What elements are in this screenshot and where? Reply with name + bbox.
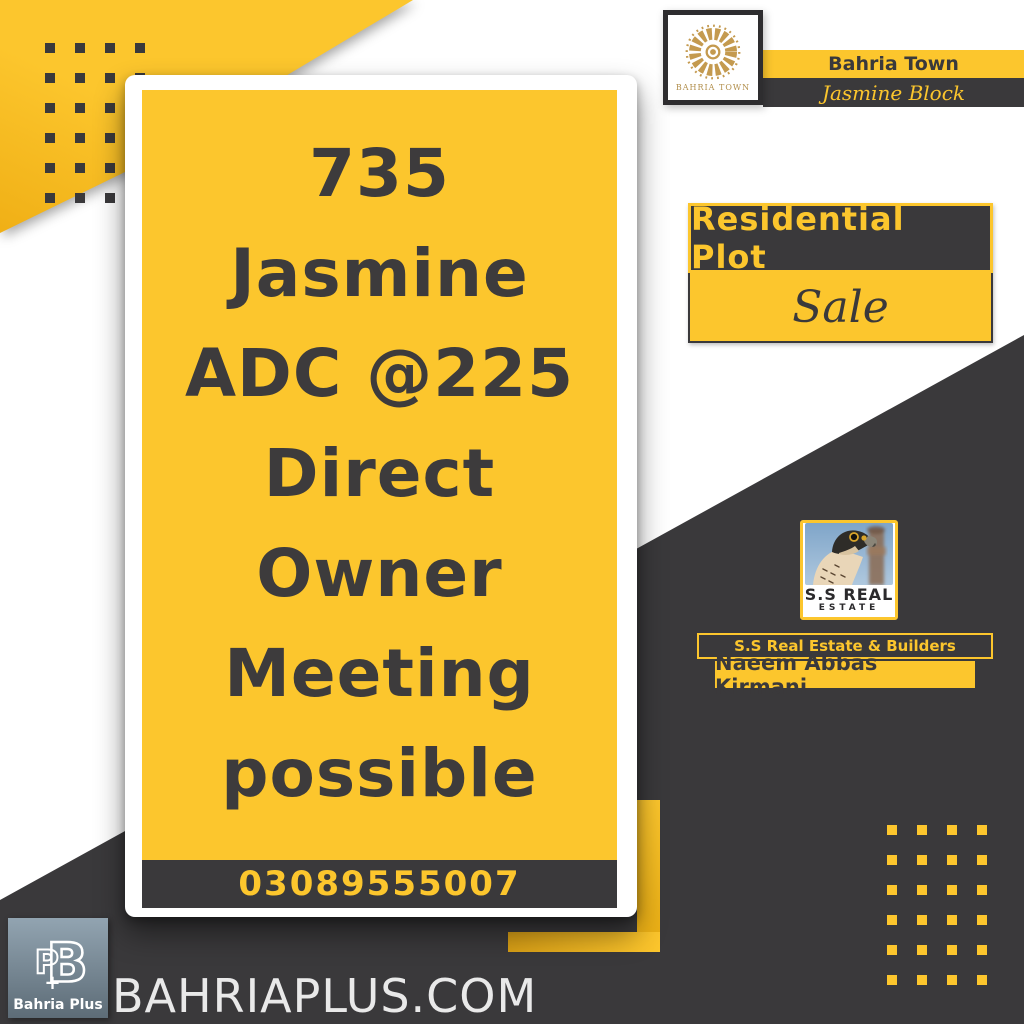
headline-line: Meeting (142, 624, 617, 724)
listing-type-bar: Residential Plot (688, 203, 993, 273)
headline-line: ADC @225 (142, 324, 617, 424)
yellow-bracket-horizontal (508, 932, 660, 952)
brand-subtitle-bar: Jasmine Block (763, 78, 1024, 107)
agency-agent-bar: Naeem Abbas Kirmani (715, 661, 975, 688)
brand-subtitle: Jasmine Block (822, 81, 965, 105)
listing-type-badge: Residential Plot Sale (688, 203, 993, 343)
listing-status-bar: Sale (688, 273, 993, 343)
yellow-bracket-vertical (637, 800, 660, 952)
listing-type-label: Residential Plot (691, 200, 990, 276)
listing-status-label: Sale (792, 282, 889, 333)
yellow-dot-grid (887, 825, 988, 986)
ss-real-estate-logo-box: S.S REAL ESTATE (800, 520, 898, 620)
bahria-town-logo-caption: BAHRIA TOWN (676, 83, 750, 92)
svg-text:+: + (44, 971, 60, 994)
poster-canvas: 735 Jasmine ADC @225 Direct Owner Meetin… (0, 0, 1024, 1024)
headline-line: Direct (142, 424, 617, 524)
bahria-plus-monogram-icon: B P + (23, 929, 93, 997)
brand-title-bar: Bahria Town (763, 50, 1024, 78)
headline-line: Owner (142, 524, 617, 624)
bahria-plus-logo-plate: B P + Bahria Plus (8, 918, 108, 1018)
website-url: BAHRIAPLUS.COM (112, 968, 537, 1024)
falcon-photo (805, 523, 893, 585)
headline-line: possible (142, 724, 617, 824)
phone-band: 03089555007 (142, 860, 617, 908)
ss-logo-title: S.S REAL (805, 586, 894, 603)
listing-card: 735 Jasmine ADC @225 Direct Owner Meetin… (125, 75, 637, 917)
headline-line: Jasmine (142, 224, 617, 324)
brand-title: Bahria Town (828, 53, 959, 75)
brand-header-bars: Bahria Town Jasmine Block (763, 50, 1024, 107)
agency-agent-name: Naeem Abbas Kirmani (715, 651, 975, 699)
headline-line: 735 (142, 124, 617, 224)
bahria-town-mandala-icon (684, 23, 742, 81)
bahria-town-logo-box: BAHRIA TOWN (663, 10, 763, 105)
phone-number: 03089555007 (238, 864, 520, 904)
ss-logo-subtitle: ESTATE (819, 603, 880, 613)
listing-headline-panel: 735 Jasmine ADC @225 Direct Owner Meetin… (142, 90, 617, 860)
bahria-plus-caption: Bahria Plus (13, 997, 102, 1013)
